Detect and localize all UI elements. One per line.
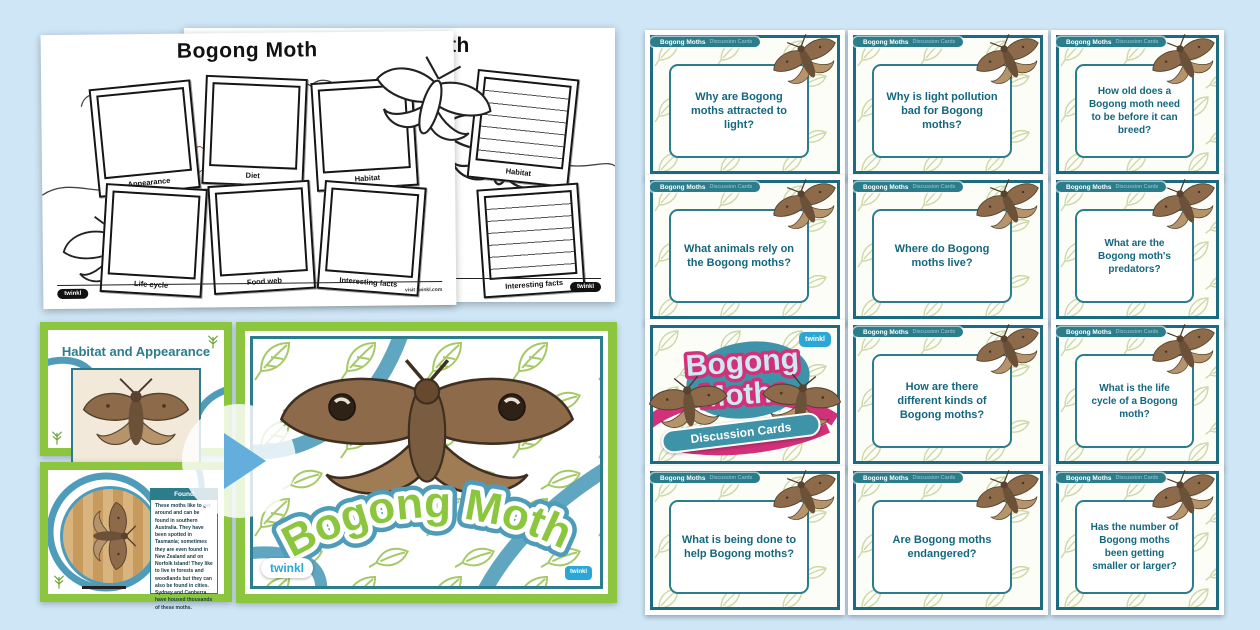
slide-title: Habitat and Appearance [48,344,224,359]
discussion-card[interactable]: Bogong MothsDiscussion Cards Are Bogong … [848,466,1048,615]
twinkl-logo: twinkl [570,282,601,292]
discussion-card[interactable]: Bogong MothsDiscussion Cards What is the… [1051,320,1224,469]
card-header-badge: Bogong MothsDiscussion Cards [853,37,963,47]
discussion-card[interactable]: Bogong MothsDiscussion Cards Why is ligh… [848,30,1048,179]
worksheet-frame: Appearance [89,79,201,197]
discussion-card[interactable]: Bogong MothsDiscussion Cards Has the num… [1051,466,1224,615]
card-header-badge: Bogong MothsDiscussion Cards [853,473,963,483]
leaf-doodle-icon [206,332,220,350]
moth-circle-photo [60,486,160,586]
photo-caption-line [82,586,126,589]
card-header-badge: Bogong MothsDiscussion Cards [853,327,963,337]
discussion-card[interactable]: Bogong MothsDiscussion Cards How old doe… [1051,30,1224,179]
twinkl-logo: twinkl [261,558,313,578]
discussion-card[interactable]: Bogong MothsDiscussion Cards What animal… [645,175,845,324]
discussion-card[interactable]: Bogong MothsDiscussion Cards What are th… [1051,175,1224,324]
discussion-card[interactable]: Bogong MothsDiscussion Cards What is bei… [645,466,845,615]
twinkl-logo: twinkl [799,332,831,347]
resource-preview: Bogong Moth Habitat Interesting facts vi… [0,0,1260,630]
card-header-badge: Bogong MothsDiscussion Cards [1056,473,1166,483]
discussion-cards-title-card[interactable]: Bogong Moths Discussion Cards twinkl [645,320,845,469]
discussion-card[interactable]: Bogong MothsDiscussion Cards How are the… [848,320,1048,469]
card-header-badge: Bogong MothsDiscussion Cards [1056,37,1166,47]
worksheet-frame: Life cycle [100,183,208,298]
card-header-badge: Bogong MothsDiscussion Cards [650,37,760,47]
card-header-badge: Bogong MothsDiscussion Cards [1056,327,1166,337]
twinkl-logo: twinkl [57,289,88,299]
worksheet-frame: Diet [201,75,307,188]
twinkl-badge: twinkl [565,566,592,580]
svg-text:Bogong Moth: Bogong Moth [274,478,579,566]
discussion-card[interactable]: Bogong MothsDiscussion Cards Where do Bo… [848,175,1048,324]
leaf-doodle-icon [50,428,64,446]
card-header-badge: Bogong MothsDiscussion Cards [853,182,963,192]
worksheet-frame: Interesting facts [317,180,427,297]
play-button[interactable] [182,404,296,518]
card-header-badge: Bogong MothsDiscussion Cards [1056,182,1166,192]
found-body: These moths like to get around and can b… [151,500,217,615]
play-icon [224,433,266,489]
discussion-card[interactable]: Bogong MothsDiscussion Cards Why are Bog… [645,30,845,179]
card-header-badge: Bogong MothsDiscussion Cards [650,473,760,483]
card-header-badge: Bogong MothsDiscussion Cards [650,182,760,192]
leaf-doodle-icon [52,572,66,590]
worksheet-frame: Food web [207,180,316,295]
